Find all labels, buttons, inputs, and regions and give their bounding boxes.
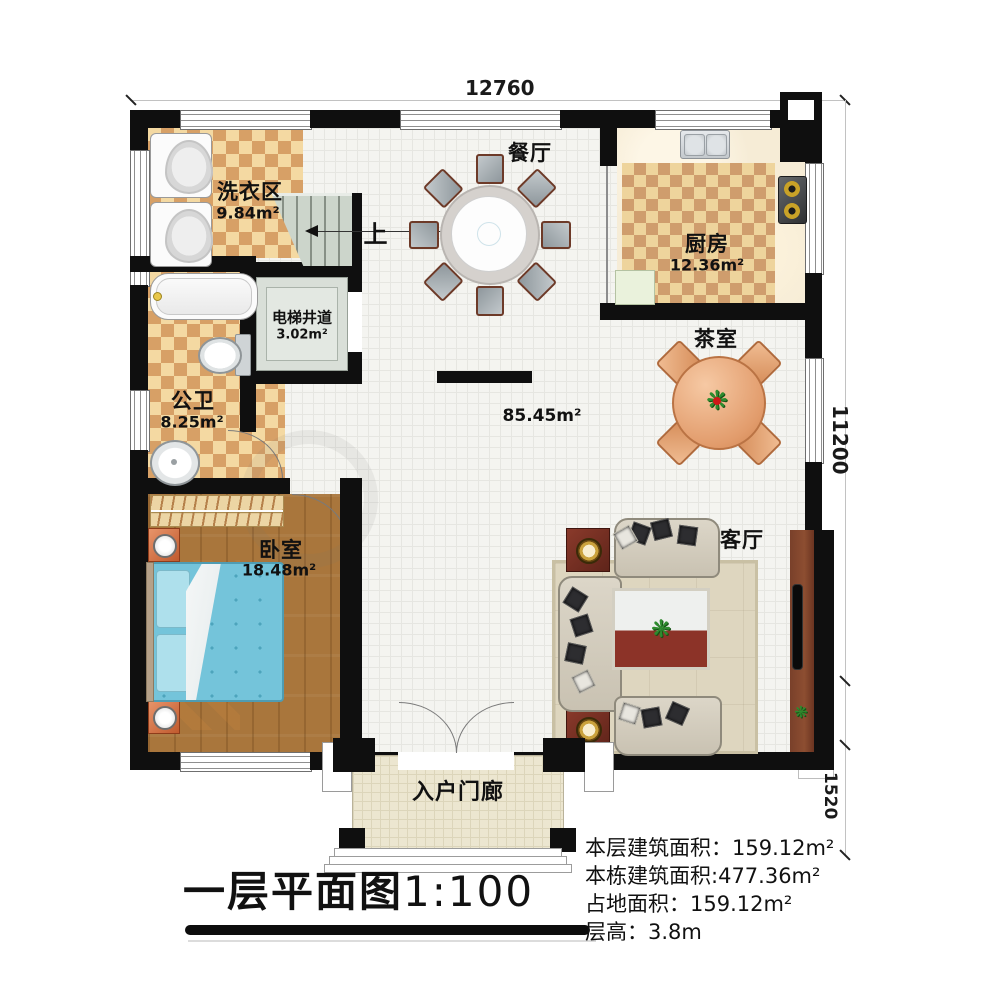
stat-line-building-area: 本栋建筑面积:477.36m² [585,862,834,890]
stat-line-floor-area: 本层建筑面积：159.12m² [585,834,834,862]
wall [130,110,148,150]
wall [240,384,256,432]
toilet-bowl [198,337,242,374]
bathroom-sink [150,440,200,486]
window [805,163,824,275]
washing-machine [150,133,212,198]
chimney-flue [788,100,814,120]
burner [784,181,800,197]
stat-value: 159.12m² [732,836,834,860]
plan-title-text: 一层平面图 [183,867,403,916]
living-name: 客厅 [720,524,764,554]
bed [150,562,284,702]
bathtub-inner [156,278,252,315]
sofa-pillow [677,525,698,546]
window [180,752,312,772]
tv-screen [792,584,803,670]
stat-label: 本栋建筑面积: [585,864,718,888]
closet-rail [151,510,283,512]
laundry-name: 洗衣区 [217,176,283,206]
dining-chair [476,154,504,184]
dining-chair [409,221,439,249]
bedroom-area: 18.48m² [242,561,316,580]
window [180,110,312,130]
side-table [566,528,610,572]
stat-line-height: 层高：3.8m [585,918,834,946]
top-dimension-label: 12760 [465,76,535,100]
bathroom-area: 8.25m² [160,413,223,432]
wall [560,110,655,128]
porch-column [543,738,585,772]
wall [130,752,180,770]
laundry-area: 9.84m² [216,204,279,223]
sofa-pillow [564,642,587,665]
sink-basin [684,134,705,156]
dining-table-center [477,222,501,246]
tea-table-flower [713,397,721,405]
stat-label: 本层建筑面积： [585,836,732,860]
stat-value: 3.8m [648,920,702,944]
plan-title: 一层平面图1:100 [183,858,534,919]
hall-area: 85.45m² [503,406,582,426]
kitchen-area: 12.36m² [670,256,744,275]
wall-stub [437,371,532,383]
nightstand-lamp [153,534,177,558]
top-dimension-line [130,100,846,101]
wall [600,303,822,320]
washing-machine [150,202,212,267]
window [655,110,772,130]
burner [784,203,800,219]
nightstand-lamp [153,706,177,730]
dining-chair [541,221,571,249]
stat-value: 159.12m² [690,892,792,916]
wall [310,110,400,128]
plan-scale: 1:100 [403,867,534,916]
stat-value: 477.36m² [718,864,820,888]
sofa-pillow [640,706,662,728]
bed-sheet [186,564,242,700]
right-dimension-line [845,100,846,855]
title-underline [185,925,590,935]
bed-pillow [156,634,190,692]
wall [130,285,148,390]
window [805,358,824,464]
wall [805,462,822,532]
stat-label: 占地面积： [585,892,690,916]
stat-label: 层高： [585,920,648,944]
bathroom-name: 公卫 [171,385,215,415]
elevator-name: 电梯井道 [272,307,332,328]
wall [600,128,617,166]
porch-column [333,738,375,772]
bed-pillow [156,570,190,628]
wall [805,128,822,163]
stats-block: 本层建筑面积：159.12m² 本栋建筑面积:477.36m² 占地面积：159… [585,834,834,946]
right-porch-label: 1520 [820,772,840,819]
title-underline-shadow [188,940,596,942]
elevator-door-gap [348,292,362,352]
sink-drain [171,459,177,465]
kitchen-slider-track [606,166,608,303]
washer-door [165,209,213,263]
stat-line-footprint: 占地面积：159.12m² [585,890,834,918]
window [130,390,150,452]
fridge [615,270,655,305]
porch-column-outline [584,742,614,792]
tea-name: 茶室 [694,323,738,353]
nightstand [148,528,180,562]
bed-headboard [146,562,154,702]
stair-arrow-head [305,225,318,237]
right-dimension-label: 11200 [828,405,852,475]
bathtub [150,273,258,320]
nightstand [148,700,180,734]
window [400,110,562,130]
kitchen-sink [680,130,730,159]
kitchen-name: 厨房 [685,228,729,258]
coffee-table: ❋ [612,588,710,670]
entry-door-opening [398,752,514,770]
bedroom-name: 卧室 [259,534,303,564]
dining-chair [476,286,504,316]
sink-basin [706,134,727,156]
stove [778,176,807,224]
table-lamp [576,538,602,564]
wall [814,530,834,770]
stair-up-label: 上 [364,215,389,250]
bathtub-tap [153,292,162,301]
floor-plan-canvas: 12760 11200 800 1520 ❋ [0,0,1000,990]
elevator-area: 3.02m² [276,328,327,343]
wall [130,478,290,494]
porch-name: 入户门廊 [412,774,504,806]
plant-icon: ❋ [794,703,807,722]
dining-name: 餐厅 [508,137,552,167]
coffee-table-plant: ❋ [651,615,671,643]
wall [340,478,362,752]
closet [150,495,284,527]
washer-door [165,140,213,194]
